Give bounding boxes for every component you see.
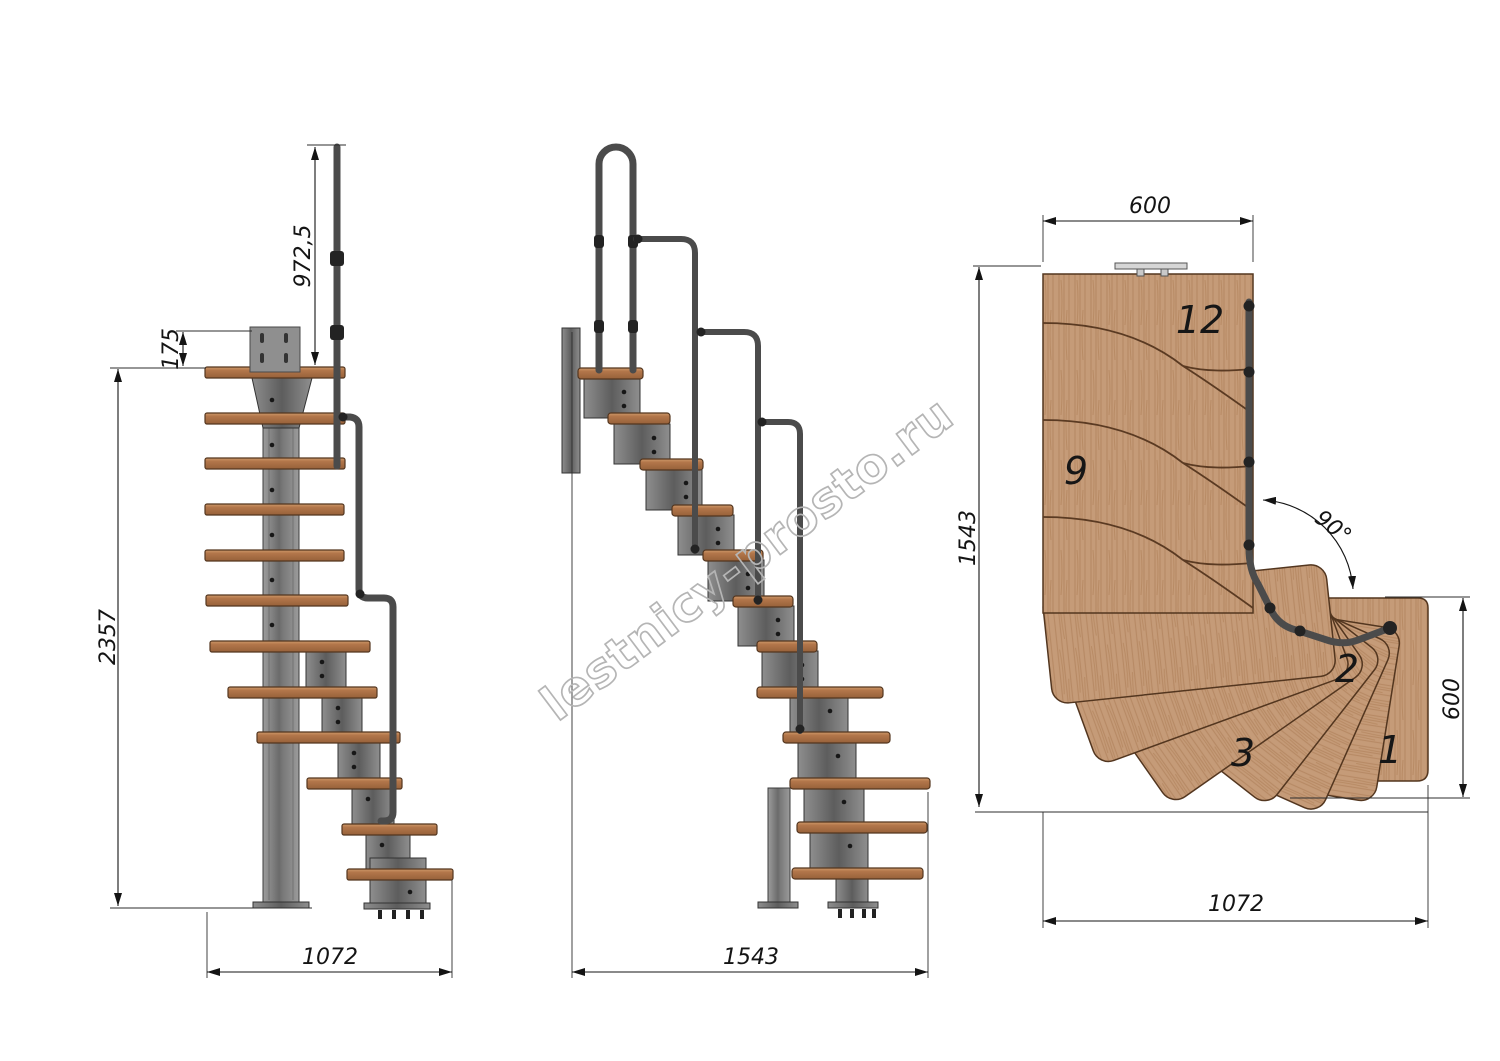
center-column (263, 372, 299, 905)
spine-module (614, 424, 670, 464)
support-flange (828, 902, 878, 908)
dim-plan-right-width: 600 (1440, 678, 1465, 720)
dim-plan-bottom-length: 1072 (1208, 892, 1264, 917)
staircase-technical-drawing: 972,5 175 2357 1072 (0, 0, 1500, 1061)
bottom-support-flange (364, 903, 430, 909)
rail-clamp (330, 251, 344, 266)
column-base-flange (253, 902, 309, 908)
anchor-bolts (838, 909, 876, 918)
step-number-12: 12 (1176, 298, 1224, 342)
drawing-svg: 972,5 175 2357 1072 (0, 0, 1500, 1061)
bottom-support (370, 858, 426, 904)
dim-side-footprint: 1072 (302, 945, 358, 970)
anchor-bolts (378, 910, 424, 919)
tread (347, 869, 453, 880)
tread (790, 778, 930, 789)
top-mounting-bracket (250, 327, 300, 372)
spine-module (762, 651, 818, 692)
leg-flange (758, 902, 798, 908)
tread (307, 778, 402, 789)
tread (205, 550, 344, 561)
side-steps (205, 367, 453, 880)
dim-bracket-offset: 175 (159, 328, 184, 370)
tread (608, 413, 670, 424)
tread (257, 732, 400, 743)
dim-plan-top-width: 600 (1129, 194, 1171, 219)
tread (205, 413, 345, 424)
dim-total-height: 2357 (96, 609, 121, 665)
tread (228, 687, 377, 698)
spine-module (738, 606, 794, 646)
tread (757, 641, 817, 652)
front-leg (768, 788, 790, 904)
watermark-text: lestnicy-prosto.ru (531, 386, 964, 732)
rail-clamp (330, 325, 344, 340)
tread (792, 868, 923, 879)
tread (757, 687, 883, 698)
dim-plan-left-length: 1543 (956, 510, 981, 566)
spine-module (584, 378, 640, 418)
tread (205, 504, 344, 515)
wall-bracket (562, 328, 580, 473)
spine-module (798, 742, 856, 783)
plan-view: 12 9 2 3 1 600 1543 600 1072 90° (956, 194, 1470, 928)
spine-module (810, 832, 868, 873)
dim-front-footprint: 1543 (723, 945, 779, 970)
tread (206, 595, 348, 606)
tread (210, 641, 370, 652)
handrail-loop (599, 147, 633, 370)
step-number-1: 1 (1378, 728, 1402, 772)
side-elevation-view: 972,5 175 2357 1072 (96, 145, 453, 978)
handrail-end-ball (1383, 621, 1397, 635)
step-number-2: 2 (1335, 647, 1359, 691)
step-number-9: 9 (1064, 449, 1088, 493)
dim-turn-angle: 90° (1310, 506, 1356, 550)
tread (205, 458, 345, 469)
dim-handrail-height: 972,5 (291, 225, 316, 288)
tread (797, 822, 927, 833)
tread (342, 824, 437, 835)
tread (672, 505, 733, 516)
step-number-3: 3 (1231, 731, 1255, 775)
